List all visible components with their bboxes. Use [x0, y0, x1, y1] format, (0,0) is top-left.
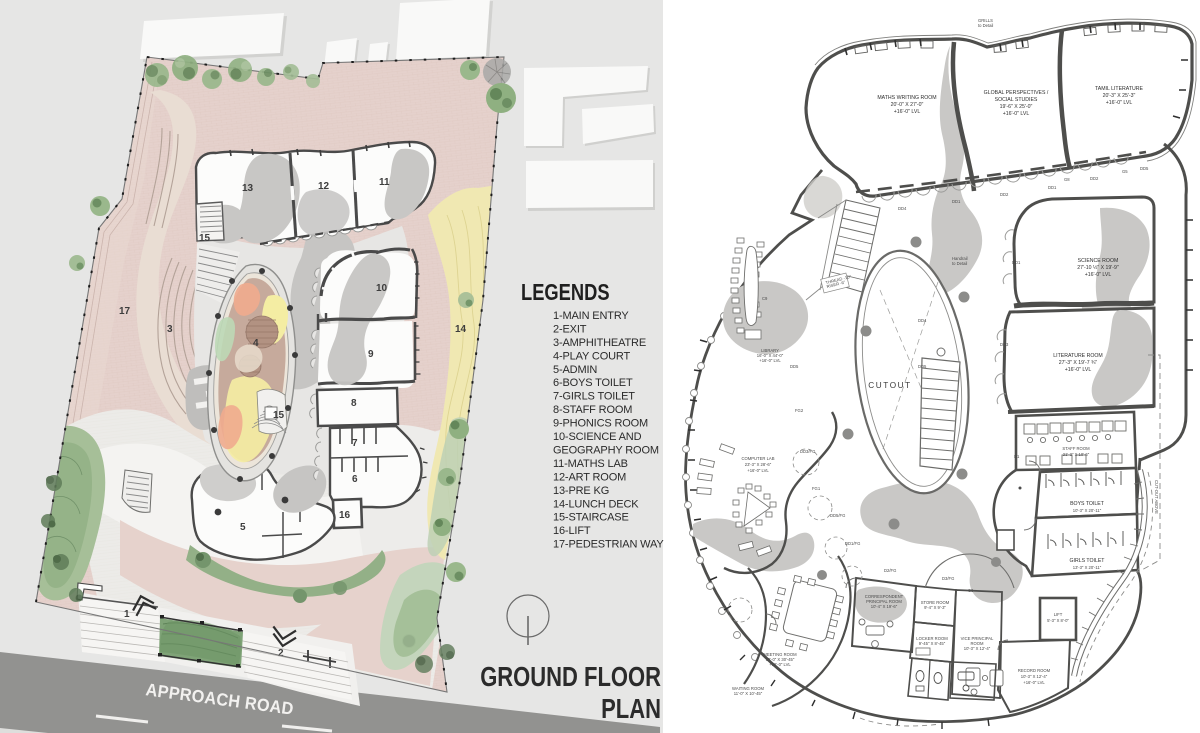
svg-text:DD1: DD1 [952, 199, 961, 204]
svg-text:DD5: DD5 [918, 364, 927, 369]
svg-text:5: 5 [240, 522, 246, 533]
svg-text:16-LIFT: 16-LIFT [553, 525, 591, 537]
svg-text:3: 3 [167, 324, 173, 335]
svg-text:8: 8 [351, 398, 357, 409]
svg-text:GROUND FLOOR: GROUND FLOOR [480, 662, 661, 693]
svg-text:10'-3" X 12'-4": 10'-3" X 12'-4" [1021, 674, 1048, 679]
svg-text:15: 15 [199, 233, 211, 244]
svg-text:4-PLAY COURT: 4-PLAY COURT [553, 350, 630, 362]
svg-text:GLOBAL PERSPECTIVES /: GLOBAL PERSPECTIVES / [984, 90, 1049, 96]
svg-text:COMPUTER LAB: COMPUTER LAB [741, 456, 774, 461]
svg-text:DD5/FG: DD5/FG [830, 513, 845, 518]
svg-text:+16'-0" LVL: +16'-0" LVL [1023, 680, 1045, 685]
svg-text:16: 16 [339, 510, 351, 521]
svg-text:DD1: DD1 [1012, 260, 1021, 265]
svg-text:27'-10 ½" X 19'-9": 27'-10 ½" X 19'-9" [1077, 264, 1119, 271]
svg-text:21'-3" X 10'-6": 21'-3" X 10'-6" [1063, 452, 1090, 457]
svg-text:23'-3" X 28'-6": 23'-3" X 28'-6" [745, 462, 772, 467]
svg-text:17-PEDESTRIAN WAY: 17-PEDESTRIAN WAY [553, 539, 664, 551]
svg-text:BOYS TOILET: BOYS TOILET [1070, 501, 1105, 507]
svg-text:5-ADMIN: 5-ADMIN [553, 364, 597, 376]
svg-text:27'-3" X 19'-7 ¾": 27'-3" X 19'-7 ¾" [1059, 360, 1098, 366]
svg-text:+16'-0" LVL: +16'-0" LVL [759, 358, 781, 363]
svg-text:14: 14 [455, 324, 467, 335]
svg-text:GEOGRAPHY ROOM: GEOGRAPHY ROOM [553, 445, 659, 457]
svg-text:G5: G5 [1122, 169, 1128, 174]
svg-text:12: 12 [318, 181, 330, 192]
svg-text:11-MATHS LAB: 11-MATHS LAB [553, 458, 628, 470]
svg-text:STAFF ROOM: STAFF ROOM [1062, 446, 1090, 451]
svg-text:+16'-0" LVL: +16'-0" LVL [1106, 100, 1133, 106]
svg-text:to Detail: to Detail [952, 261, 967, 266]
svg-text:CUT-OUT ABOVE: CUT-OUT ABOVE [1154, 480, 1159, 514]
svg-text:+16'-0" LVL: +16'-0" LVL [1085, 272, 1112, 278]
svg-text:DD2: DD2 [1000, 192, 1009, 197]
svg-text:+16'-0" LVL: +16'-0" LVL [747, 468, 769, 473]
svg-text:FG2: FG2 [795, 408, 804, 413]
svg-text:C6: C6 [968, 588, 974, 593]
svg-text:DD4: DD4 [918, 318, 927, 323]
svg-text:7-GIRLS TOILET: 7-GIRLS TOILET [553, 391, 635, 403]
svg-text:TAMIL LITERATURE: TAMIL LITERATURE [1095, 86, 1144, 92]
svg-text:15-STAIRCASE: 15-STAIRCASE [553, 512, 629, 524]
svg-text:13'-3" X 20'-11": 13'-3" X 20'-11" [1073, 565, 1102, 570]
svg-text:DD3: DD3 [1000, 342, 1009, 347]
svg-text:PLAN: PLAN [601, 694, 661, 725]
svg-text:9-PHONICS ROOM: 9-PHONICS ROOM [553, 418, 648, 430]
svg-text:D2/FG: D2/FG [884, 568, 896, 573]
svg-text:13: 13 [242, 183, 254, 194]
svg-text:7: 7 [352, 438, 358, 449]
svg-text:10: 10 [376, 283, 388, 294]
svg-text:DD5: DD5 [1140, 166, 1149, 171]
svg-text:20'-0" X 27'-0": 20'-0" X 27'-0" [891, 102, 924, 108]
svg-text:+16'-0" LVL: +16'-0" LVL [1065, 367, 1092, 373]
svg-text:+16'-0" LVL: +16'-0" LVL [1003, 111, 1030, 117]
svg-text:SCIENCE ROOM: SCIENCE ROOM [1078, 258, 1119, 264]
svg-text:D3/FG: D3/FG [942, 576, 954, 581]
svg-text:6-BOYS TOILET: 6-BOYS TOILET [553, 377, 633, 389]
svg-text:1-MAIN ENTRY: 1-MAIN ENTRY [553, 310, 629, 322]
svg-text:2: 2 [278, 648, 284, 659]
svg-text:DD3/FG: DD3/FG [800, 449, 815, 454]
svg-text:9'-4" X 9'-3": 9'-4" X 9'-3" [924, 605, 946, 610]
svg-text:15: 15 [273, 410, 285, 421]
svg-text:10'-4" X 19'-6": 10'-4" X 19'-6" [871, 604, 898, 609]
svg-text:DD2: DD2 [1090, 176, 1099, 181]
svg-text:FG1: FG1 [812, 486, 821, 491]
svg-text:CUTOUT: CUTOUT [868, 381, 912, 390]
svg-text:20'-3" X 25'-3": 20'-3" X 25'-3" [1103, 93, 1136, 99]
svg-text:SOCIAL STUDIES: SOCIAL STUDIES [995, 97, 1038, 103]
svg-text:5'-3" X 8'-0": 5'-3" X 8'-0" [1047, 618, 1069, 623]
svg-text:14-LUNCH DECK: 14-LUNCH DECK [553, 498, 639, 510]
svg-text:to Detail: to Detail [978, 23, 993, 28]
svg-text:10-SCIENCE AND: 10-SCIENCE AND [553, 431, 642, 443]
svg-text:DD1: DD1 [1048, 185, 1057, 190]
svg-text:6: 6 [352, 474, 358, 485]
svg-text:13-PRE KG: 13-PRE KG [553, 485, 609, 497]
svg-text:+16'-0" LVL: +16'-0" LVL [894, 109, 921, 115]
svg-text:DD4: DD4 [898, 206, 907, 211]
svg-text:9: 9 [368, 349, 374, 360]
svg-text:10'-3" X 20'-11": 10'-3" X 20'-11" [1073, 508, 1102, 513]
svg-text:LIFT: LIFT [1054, 612, 1063, 617]
svg-text:LITERATURE ROOM: LITERATURE ROOM [1053, 353, 1102, 359]
svg-text:D1: D1 [1014, 454, 1020, 459]
svg-text:11: 11 [379, 177, 390, 188]
svg-text:2-EXIT: 2-EXIT [553, 323, 587, 335]
svg-text:17: 17 [119, 306, 131, 317]
svg-text:+16'-0" LVL: +16'-0" LVL [769, 662, 791, 667]
svg-text:LEGENDS: LEGENDS [521, 280, 610, 306]
svg-text:DD1/FG: DD1/FG [845, 541, 860, 546]
svg-text:DD5: DD5 [790, 364, 799, 369]
svg-text:MATHS WRITING ROOM: MATHS WRITING ROOM [877, 95, 936, 101]
svg-text:10'-3" X 12'-4": 10'-3" X 12'-4" [964, 646, 991, 651]
svg-text:RECORD ROOM: RECORD ROOM [1018, 668, 1051, 673]
svg-text:8-STAFF ROOM: 8-STAFF ROOM [553, 404, 632, 416]
svg-text:1: 1 [124, 609, 130, 620]
svg-text:G8: G8 [1064, 177, 1070, 182]
svg-text:9'-45" X 8'-45": 9'-45" X 8'-45" [919, 641, 946, 646]
svg-text:3-AMPHITHEATRE: 3-AMPHITHEATRE [553, 337, 646, 349]
svg-text:12-ART ROOM: 12-ART ROOM [553, 471, 626, 483]
svg-text:19'-6" X 25'-0": 19'-6" X 25'-0" [1000, 104, 1033, 110]
svg-text:C9: C9 [762, 296, 768, 301]
svg-text:4: 4 [253, 338, 259, 349]
svg-text:GIRLS TOILET: GIRLS TOILET [1070, 558, 1106, 564]
svg-text:11'-0" X 10'-45": 11'-0" X 10'-45" [734, 691, 763, 696]
